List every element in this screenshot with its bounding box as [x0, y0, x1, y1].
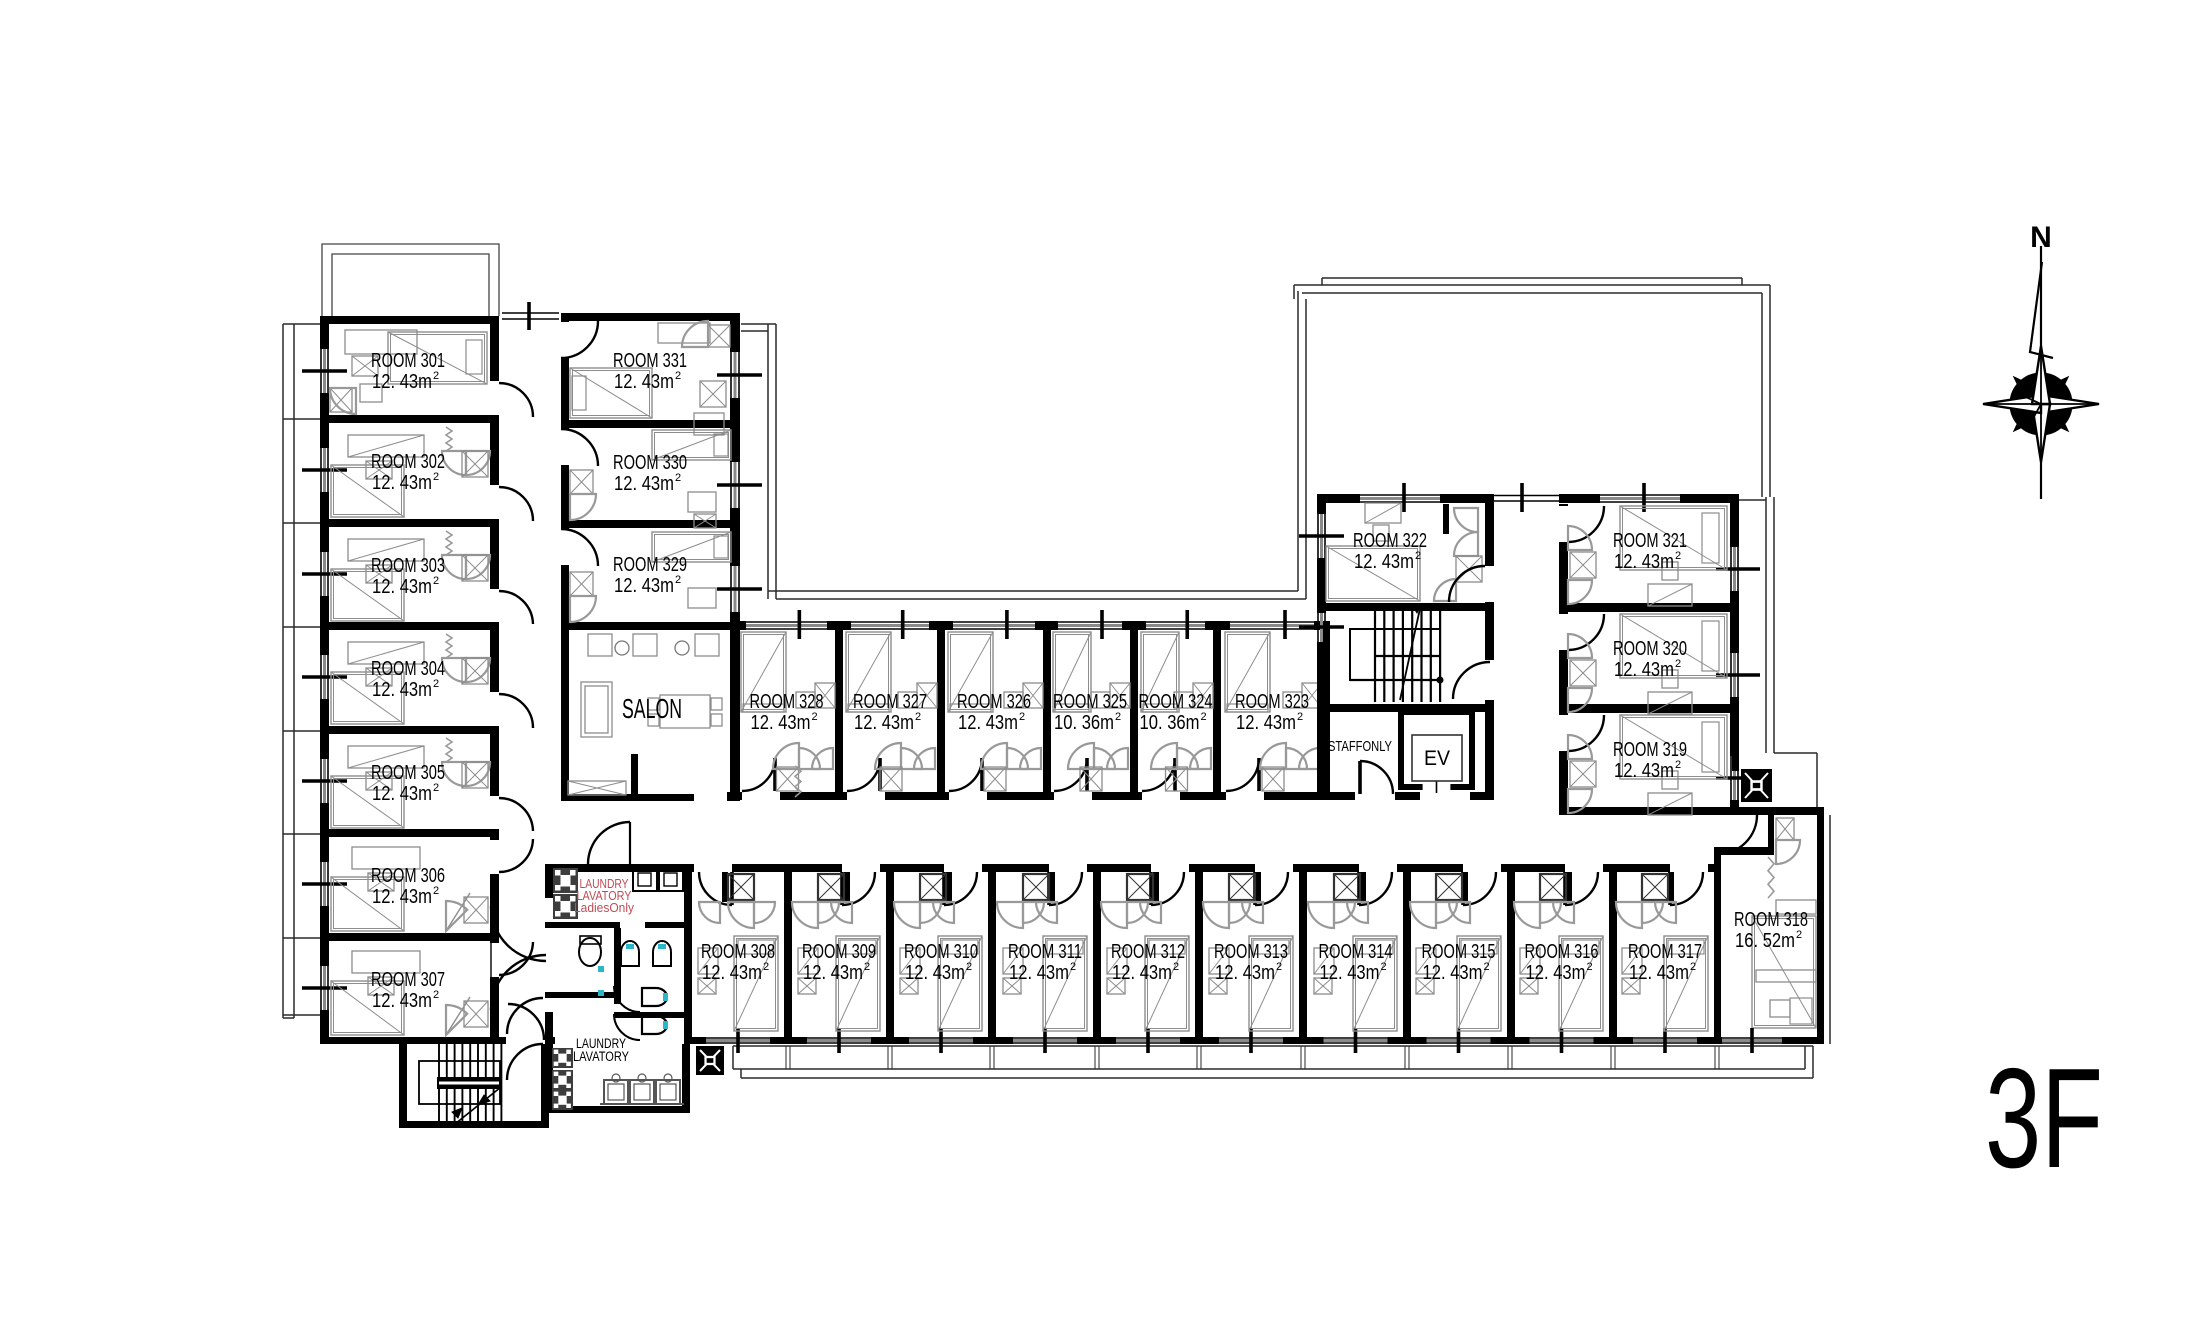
- svg-text:ROOM 314: ROOM 314: [1319, 941, 1393, 963]
- svg-text:12. 43m: 12. 43m: [1614, 760, 1674, 782]
- svg-text:12. 43m: 12. 43m: [958, 712, 1018, 734]
- svg-text:2: 2: [675, 370, 681, 382]
- svg-text:12. 43m: 12. 43m: [372, 371, 432, 393]
- svg-text:ROOM 318: ROOM 318: [1734, 909, 1808, 931]
- svg-text:12. 43m: 12. 43m: [1215, 962, 1275, 984]
- svg-text:ROOM 327: ROOM 327: [853, 691, 927, 713]
- svg-text:ROOM 301: ROOM 301: [371, 350, 445, 372]
- svg-text:12. 43m: 12. 43m: [1112, 962, 1172, 984]
- svg-text:2: 2: [1675, 550, 1681, 562]
- svg-text:2: 2: [1297, 711, 1303, 723]
- svg-text:ROOM 308: ROOM 308: [701, 941, 775, 963]
- svg-text:ROOM 315: ROOM 315: [1422, 941, 1496, 963]
- svg-text:ROOM 309: ROOM 309: [802, 941, 876, 963]
- svg-text:12. 43m: 12. 43m: [1236, 712, 1296, 734]
- svg-text:12. 43m: 12. 43m: [905, 962, 965, 984]
- svg-text:12. 43m: 12. 43m: [372, 472, 432, 494]
- svg-text:2: 2: [675, 472, 681, 484]
- svg-text:ROOM 317: ROOM 317: [1628, 941, 1702, 963]
- svg-text:12. 43m: 12. 43m: [1614, 659, 1674, 681]
- svg-text:2: 2: [812, 711, 818, 723]
- svg-text:12. 43m: 12. 43m: [372, 576, 432, 598]
- svg-text:ROOM 324: ROOM 324: [1139, 691, 1213, 713]
- svg-text:ROOM 302: ROOM 302: [371, 451, 445, 473]
- svg-text:3F: 3F: [1985, 1039, 2103, 1198]
- svg-text:12. 43m: 12. 43m: [614, 371, 674, 393]
- svg-text:12. 43m: 12. 43m: [1009, 962, 1069, 984]
- svg-text:16. 52m: 16. 52m: [1735, 930, 1795, 952]
- svg-text:12. 43m: 12. 43m: [1423, 962, 1483, 984]
- svg-text:12. 43m: 12. 43m: [1629, 962, 1689, 984]
- svg-text:2: 2: [1587, 961, 1593, 973]
- svg-text:12. 43m: 12. 43m: [614, 473, 674, 495]
- svg-text:12. 43m: 12. 43m: [702, 962, 762, 984]
- svg-text:ROOM 316: ROOM 316: [1525, 941, 1599, 963]
- svg-text:STAFFONLY: STAFFONLY: [1328, 738, 1392, 755]
- svg-text:N: N: [2030, 221, 2052, 254]
- svg-text:ROOM 330: ROOM 330: [613, 452, 687, 474]
- svg-text:EV: EV: [1424, 747, 1450, 770]
- svg-text:2: 2: [1796, 929, 1802, 941]
- svg-text:12. 43m: 12. 43m: [1614, 551, 1674, 573]
- svg-text:12. 43m: 12. 43m: [751, 712, 811, 734]
- svg-text:ROOM 326: ROOM 326: [957, 691, 1031, 713]
- svg-text:12. 43m: 12. 43m: [614, 575, 674, 597]
- svg-text:2: 2: [433, 989, 439, 1001]
- svg-text:2: 2: [966, 961, 972, 973]
- svg-text:10. 36m: 10. 36m: [1054, 712, 1114, 734]
- svg-text:2: 2: [1019, 711, 1025, 723]
- svg-text:2: 2: [763, 961, 769, 973]
- svg-text:12. 43m: 12. 43m: [372, 990, 432, 1012]
- svg-text:10. 36m: 10. 36m: [1140, 712, 1200, 734]
- svg-text:ROOM 329: ROOM 329: [613, 554, 687, 576]
- svg-text:ROOM 311: ROOM 311: [1008, 941, 1082, 963]
- svg-text:12. 43m: 12. 43m: [1526, 962, 1586, 984]
- svg-text:ROOM 313: ROOM 313: [1214, 941, 1288, 963]
- svg-text:2: 2: [1675, 658, 1681, 670]
- svg-text:12. 43m: 12. 43m: [372, 679, 432, 701]
- svg-text:ROOM 323: ROOM 323: [1235, 691, 1309, 713]
- svg-text:SALON: SALON: [622, 693, 682, 724]
- svg-text:ROOM 328: ROOM 328: [750, 691, 824, 713]
- svg-text:2: 2: [433, 678, 439, 690]
- svg-text:12. 43m: 12. 43m: [803, 962, 863, 984]
- svg-text:ROOM 303: ROOM 303: [371, 555, 445, 577]
- svg-text:ROOM 325: ROOM 325: [1053, 691, 1127, 713]
- svg-text:ROOM 305: ROOM 305: [371, 762, 445, 784]
- svg-text:12. 43m: 12. 43m: [1354, 551, 1414, 573]
- svg-text:2: 2: [864, 961, 870, 973]
- svg-text:2: 2: [1070, 961, 1076, 973]
- svg-text:2: 2: [1201, 711, 1207, 723]
- svg-text:2: 2: [915, 711, 921, 723]
- svg-text:2: 2: [1381, 961, 1387, 973]
- svg-text:ROOM 306: ROOM 306: [371, 865, 445, 887]
- svg-text:2: 2: [675, 574, 681, 586]
- svg-text:ROOM 320: ROOM 320: [1613, 638, 1687, 660]
- svg-text:2: 2: [1690, 961, 1696, 973]
- svg-text:ROOM 312: ROOM 312: [1111, 941, 1185, 963]
- svg-text:ROOM 319: ROOM 319: [1613, 739, 1687, 761]
- svg-text:ROOM 321: ROOM 321: [1613, 530, 1687, 552]
- svg-text:2: 2: [433, 471, 439, 483]
- svg-text:2: 2: [1484, 961, 1490, 973]
- svg-text:2: 2: [1415, 550, 1421, 562]
- svg-text:2: 2: [1675, 759, 1681, 771]
- svg-text:2: 2: [433, 370, 439, 382]
- svg-text:2: 2: [433, 782, 439, 794]
- svg-text:2: 2: [433, 575, 439, 587]
- svg-text:ROOM 322: ROOM 322: [1353, 530, 1427, 552]
- svg-text:ROOM 307: ROOM 307: [371, 969, 445, 991]
- svg-text:ROOM 331: ROOM 331: [613, 350, 687, 372]
- svg-text:LAVATORY: LAVATORY: [573, 1049, 629, 1064]
- svg-text:2: 2: [1276, 961, 1282, 973]
- svg-text:LadiesOnly: LadiesOnly: [574, 901, 635, 915]
- svg-text:ROOM 310: ROOM 310: [904, 941, 978, 963]
- svg-text:12. 43m: 12. 43m: [372, 886, 432, 908]
- svg-text:12. 43m: 12. 43m: [854, 712, 914, 734]
- svg-text:2: 2: [433, 885, 439, 897]
- svg-text:2: 2: [1173, 961, 1179, 973]
- svg-text:2: 2: [1115, 711, 1121, 723]
- svg-text:ROOM 304: ROOM 304: [371, 658, 445, 680]
- svg-text:12. 43m: 12. 43m: [372, 783, 432, 805]
- svg-text:12. 43m: 12. 43m: [1320, 962, 1380, 984]
